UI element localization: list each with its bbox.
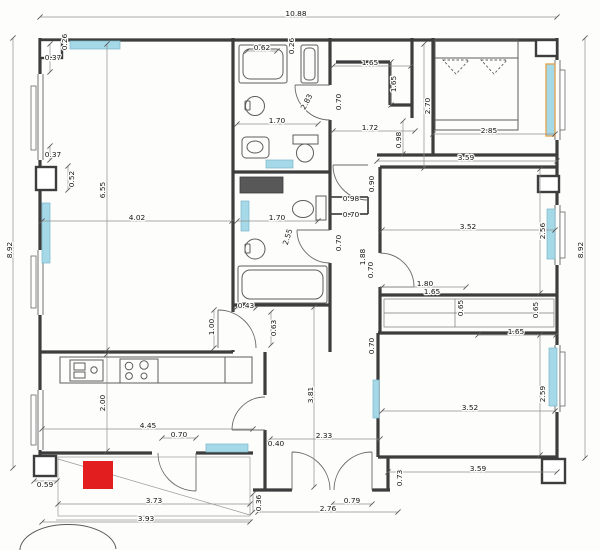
toilet [293,135,318,162]
dim-label: 0.73 [395,469,404,486]
dim-label: 3.59 [470,464,487,473]
toilet [293,196,327,220]
dim-label: 3.52 [460,222,476,231]
dim-label: 1.65 [389,75,398,92]
dim-label: 0.62 [254,43,270,52]
dim-label: 0.36 [254,494,263,511]
radiator [373,380,379,418]
dim-label: 2.76 [320,504,337,513]
dim-label: 0.70 [343,210,360,219]
shower-column [301,45,318,83]
dim-label: 0.37 [45,150,62,159]
dim-label: 0.70 [171,430,188,439]
kitchen-counter [60,357,252,383]
radiator [206,444,248,452]
dim-label: 0.40 [268,439,285,448]
dim-label: 2.70 [423,97,432,114]
dim-label: 0.43 [238,301,255,310]
dim-label: 0.70 [334,234,343,251]
dim-label: 3.52 [462,403,478,412]
dim-label: 0.26 [287,37,296,54]
dim-label: 1.65 [424,287,441,296]
door-bath2 [297,230,330,263]
floor-plan-page: 10.888.928.920.260.370.370.526.554.022.0… [0,0,600,550]
dim-label: 0.65 [456,299,465,316]
dim-label: 2.59 [538,385,547,402]
radiator [549,348,557,406]
door-living-hall [218,310,256,348]
cooktop [120,359,158,383]
dim-label: 1.70 [269,116,286,125]
dim-label: 2.56 [538,222,547,239]
radiator [266,160,293,168]
dim-label: 1.70 [269,213,286,222]
dim-label: 0.98 [343,194,360,203]
dim-label: 0.70 [366,261,375,278]
window-left-living [31,74,43,160]
dim-label: 3.59 [458,153,475,162]
dim-label: 1.65 [362,58,379,67]
door-swings [158,85,414,491]
red-marker-layer [83,461,113,489]
dim-label: 2.00 [98,394,107,411]
kitchen-sink [70,360,103,381]
dim-label: 0.90 [367,175,376,192]
column-top-right [536,40,557,56]
column-bottom-right [542,459,565,483]
bidet [242,137,269,158]
dim-label: 4.02 [129,213,145,222]
dim-label: 2.33 [316,431,333,440]
dim-label: 8.92 [5,242,14,258]
washbasin [245,239,265,259]
bathtub [238,266,327,303]
window-left-mid [31,250,43,315]
washbasin [245,97,265,116]
dim-label: 8.92 [576,242,585,258]
dim-label: 1.00 [207,318,216,335]
dim-label: 0.70 [334,93,343,110]
dim-label: 0.70 [367,337,376,354]
dim-label: 0.59 [37,480,54,489]
door-terrace [158,453,196,491]
column-bottom-left [34,456,56,476]
dim-label: 6.55 [98,181,107,198]
radiator [241,201,249,231]
shower-tray [240,177,283,193]
kitchen-fixtures [60,357,252,383]
radiator [547,209,555,259]
partial-circle-bottom-left [20,524,116,550]
dim-label: 1.72 [362,123,378,132]
radiator [70,41,120,49]
door-entry-left [292,452,330,490]
bed [435,40,518,130]
radiator-accent [546,64,555,136]
column-right-mid [538,176,559,192]
dim-label: 3.73 [146,496,163,505]
dim-label: 2.85 [481,126,498,135]
dim-label: 10.88 [285,9,306,18]
radiator [42,203,50,263]
dim-label: 0.98 [394,131,403,148]
windows [31,60,565,450]
dim-label: 0.65 [531,301,540,318]
floor-plan-drawing: 10.888.928.920.260.370.370.526.554.022.0… [0,0,600,550]
dim-label: 3.93 [138,514,155,523]
dim-label: 0.52 [67,171,76,187]
wall-closet [336,38,412,118]
wall-bedroom1 [377,38,557,155]
dim-label: 0.37 [45,53,62,62]
column-left-mid [36,167,56,190]
wall-vestibule [253,453,390,490]
dim-label: 3.81 [306,386,315,403]
dim-label: 4.45 [140,421,157,430]
door-bedroom2 [380,253,414,287]
dim-label: 0.63 [269,319,278,336]
window-left-kitchen [31,390,43,450]
window-right-bedroom1 [555,60,565,140]
dim-label: 1.65 [508,327,525,336]
door-kitchen [232,397,265,430]
wardrobe [384,299,554,327]
red-position-marker [83,461,113,489]
window-right-bedroom2 [555,205,565,265]
door-entry-right [334,452,372,490]
dim-label: 2.83 [299,92,315,111]
dim-label: 2.55 [281,227,295,246]
bedroom1-furniture [435,40,518,130]
dim-label: 0.79 [344,496,361,505]
dim-label: 0.26 [60,33,69,50]
